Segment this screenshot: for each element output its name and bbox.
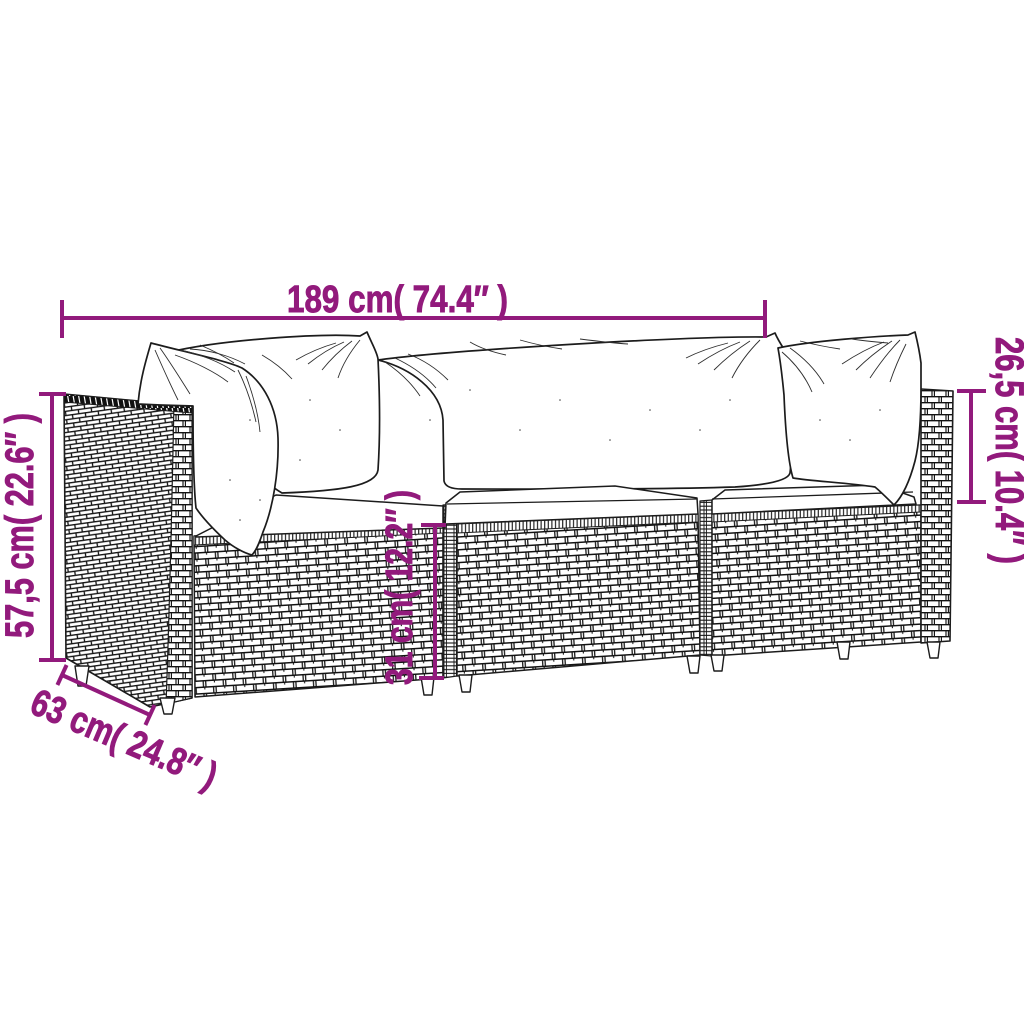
- svg-text:26,5 cm( 10.4″ ): 26,5 cm( 10.4″ ): [987, 337, 1024, 564]
- svg-text:189 cm( 74.4″ ): 189 cm( 74.4″ ): [287, 279, 508, 321]
- svg-text:57,5 cm( 22.6″ ): 57,5 cm( 22.6″ ): [0, 413, 42, 638]
- svg-text:31 cm( 12.2″ ): 31 cm( 12.2″ ): [379, 490, 421, 685]
